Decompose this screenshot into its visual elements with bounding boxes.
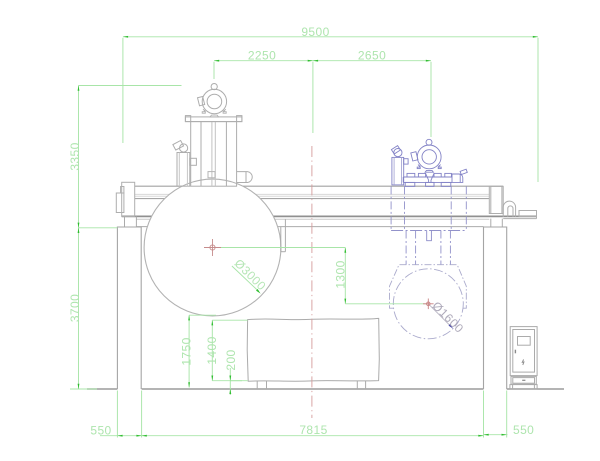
svg-text:2250: 2250 (248, 49, 276, 63)
svg-text:3350: 3350 (68, 142, 82, 170)
svg-text:550: 550 (513, 423, 534, 437)
svg-text:200: 200 (224, 349, 238, 370)
svg-text:550: 550 (90, 424, 111, 438)
svg-text:3700: 3700 (68, 294, 82, 322)
svg-text:9500: 9500 (301, 25, 329, 39)
svg-text:1400: 1400 (205, 336, 219, 364)
svg-text:7815: 7815 (299, 423, 327, 437)
svg-text:1300: 1300 (333, 260, 347, 288)
svg-text:2650: 2650 (358, 49, 386, 63)
svg-text:1750: 1750 (180, 337, 194, 365)
